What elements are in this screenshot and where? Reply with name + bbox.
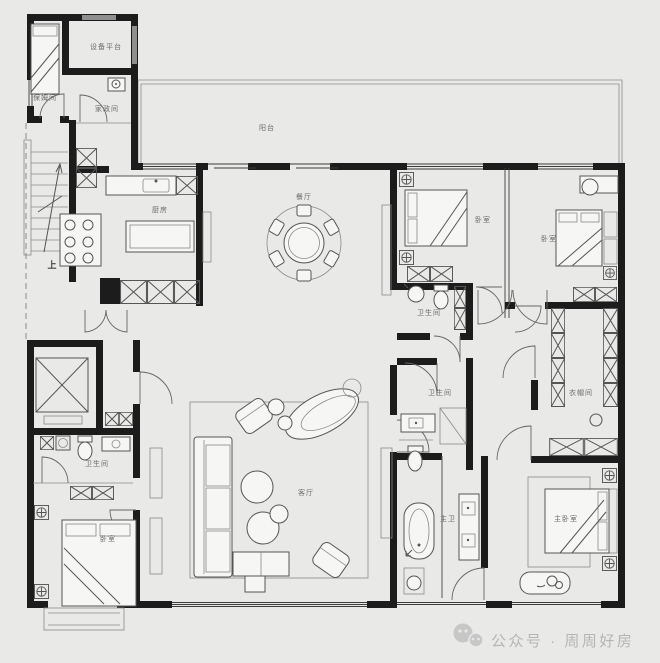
label-equipment-platform: 设备平台 [90, 42, 122, 51]
label-bedroom-left: 卧室 [100, 534, 116, 543]
kitchen-window [143, 164, 200, 169]
label-closet: 衣帽间 [569, 388, 593, 397]
label-bathroom-left: 卫生间 [85, 459, 109, 468]
stairs-up-label: 上 [47, 259, 56, 270]
label-bedroom-top-right: 卧室 [541, 234, 557, 243]
label-bathroom-top: 卫生间 [417, 308, 441, 317]
label-master-bath: 主卫 [440, 514, 456, 523]
hall-cabinets [150, 448, 162, 574]
room-bedroom-left [34, 505, 136, 606]
room-master-bedroom [520, 468, 617, 594]
room-nanny [31, 24, 59, 94]
label-living: 客厅 [298, 488, 314, 497]
wechat-icon [454, 624, 484, 648]
dining-table [284, 223, 324, 263]
bed [556, 210, 602, 266]
sofa [194, 437, 232, 577]
watermark: 公众号 · 周周好房 [454, 624, 635, 651]
chaise-lounge [278, 378, 366, 449]
room-living [190, 378, 392, 592]
label-master-bedroom: 主卧室 [554, 514, 578, 523]
bay-window [44, 608, 124, 630]
floor-plan-drawing: 上 [0, 0, 660, 663]
label-housekeeping: 家政间 [95, 104, 119, 113]
coffee-table [241, 471, 273, 503]
toilet [78, 442, 92, 460]
nanny-bed [31, 24, 59, 94]
label-bathroom-mid: 卫生间 [428, 388, 452, 397]
kitchen-island [126, 221, 194, 252]
room-balcony [138, 80, 622, 163]
armchair-2 [310, 540, 351, 580]
label-balcony: 阳台 [259, 123, 275, 132]
label-bedroom-top-mid: 卧室 [475, 215, 491, 224]
bed [62, 520, 136, 606]
bench [520, 572, 570, 594]
watermark-text: 公众号 · 周周好房 [491, 633, 634, 650]
label-dining: 餐厅 [296, 192, 312, 201]
bathtub [404, 503, 434, 559]
room-bathroom-mid [399, 408, 466, 471]
room-master-bath [404, 456, 479, 598]
label-nanny-room: 保姆间 [33, 93, 57, 102]
vanity [102, 437, 130, 451]
room-bathroom-top [404, 284, 466, 330]
desk-chair [582, 179, 598, 195]
toilet [407, 576, 421, 590]
room-bedroom-top-mid [399, 172, 467, 281]
vanity [401, 414, 435, 432]
room-bathroom-left [33, 436, 133, 500]
elevator [36, 358, 133, 426]
floor-plan-page: 上 [0, 0, 660, 663]
room-housekeeping [76, 78, 131, 123]
closet-stool [590, 414, 602, 426]
label-kitchen: 厨房 [152, 205, 168, 214]
toilet [434, 291, 448, 309]
round-basin [408, 286, 424, 302]
room-closet [550, 309, 618, 456]
walls [27, 14, 625, 608]
toilet [408, 451, 422, 471]
room-bedroom-top-right [556, 176, 618, 302]
room-dining [267, 205, 391, 295]
